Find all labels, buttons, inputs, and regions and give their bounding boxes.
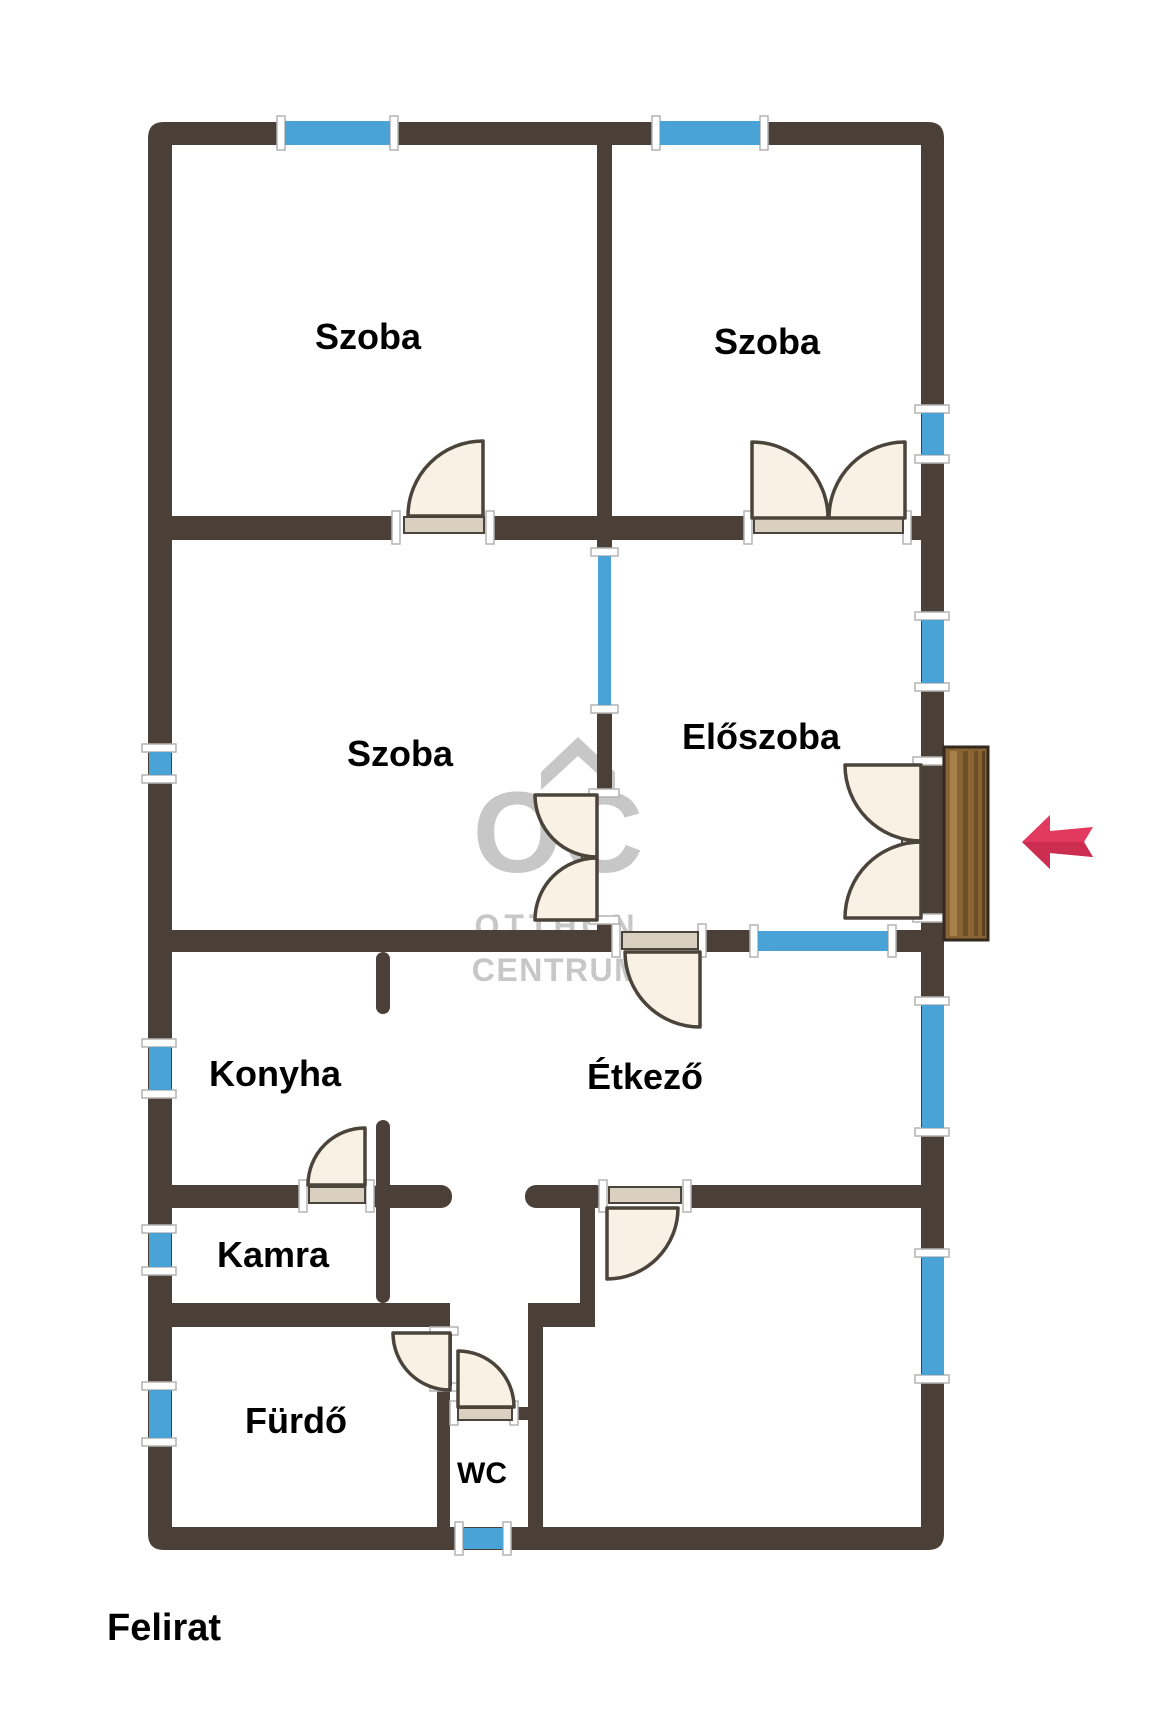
wall-h3-b [368, 1185, 452, 1208]
room-label-etkezo: Étkező [587, 1056, 703, 1097]
wall-v2-a [376, 952, 390, 1014]
room-label-kamra: Kamra [217, 1234, 330, 1275]
window-left-furdo [149, 1390, 171, 1438]
room-label-szoba-top-right: Szoba [714, 321, 821, 362]
room-label-konyha: Konyha [209, 1053, 342, 1094]
wall-h3-a [172, 1185, 307, 1208]
entrance-door-panel [944, 747, 988, 940]
wall-v4 [528, 1327, 543, 1527]
wall-h3-d [685, 1185, 921, 1208]
caption-felirat: Felirat [107, 1607, 221, 1649]
wall-v2-b [376, 1120, 390, 1303]
window-top-right-szoba [660, 121, 760, 145]
window-left-konyha [149, 1047, 171, 1090]
wall-vjog [580, 1208, 595, 1303]
wall-h3-c [525, 1185, 607, 1208]
wall-h4 [172, 1303, 450, 1327]
wall-h2-c [896, 930, 921, 952]
wall-h1-c [612, 516, 752, 540]
window-top-left-szoba [285, 121, 390, 145]
floor-plan-page: OC OTTHON CENTRUM [0, 0, 1160, 1720]
wall-v3-b [437, 1385, 450, 1527]
window-interior-eloszoba-etkezo [758, 931, 888, 951]
floor-plan-svg: OC OTTHON CENTRUM [0, 0, 1160, 1720]
wall-v1-b [597, 712, 612, 795]
wall-h2-b [700, 930, 750, 952]
window-right-etkezo [922, 1005, 944, 1128]
window-bottom-wc [463, 1528, 503, 1549]
window-right-szoba-bottom [922, 1257, 944, 1375]
room-label-szoba-top-left: Szoba [315, 316, 422, 357]
window-left-szoba-middle [149, 752, 171, 775]
wall-v1-a [597, 145, 612, 548]
window-left-kamra [149, 1233, 171, 1267]
wall-h1-a [172, 516, 397, 540]
room-label-eloszoba: Előszoba [682, 716, 841, 757]
wall-h2-a [172, 930, 613, 952]
window-interior-szoba-eloszoba [598, 556, 611, 705]
wall-hjog [528, 1303, 595, 1327]
room-label-furdo: Fürdő [245, 1400, 347, 1441]
window-right-szoba-top [922, 413, 944, 455]
wall-h1-b [490, 516, 597, 540]
room-label-szoba-middle: Szoba [347, 733, 454, 774]
window-right-eloszoba [922, 620, 944, 683]
room-label-wc: WC [457, 1457, 507, 1490]
